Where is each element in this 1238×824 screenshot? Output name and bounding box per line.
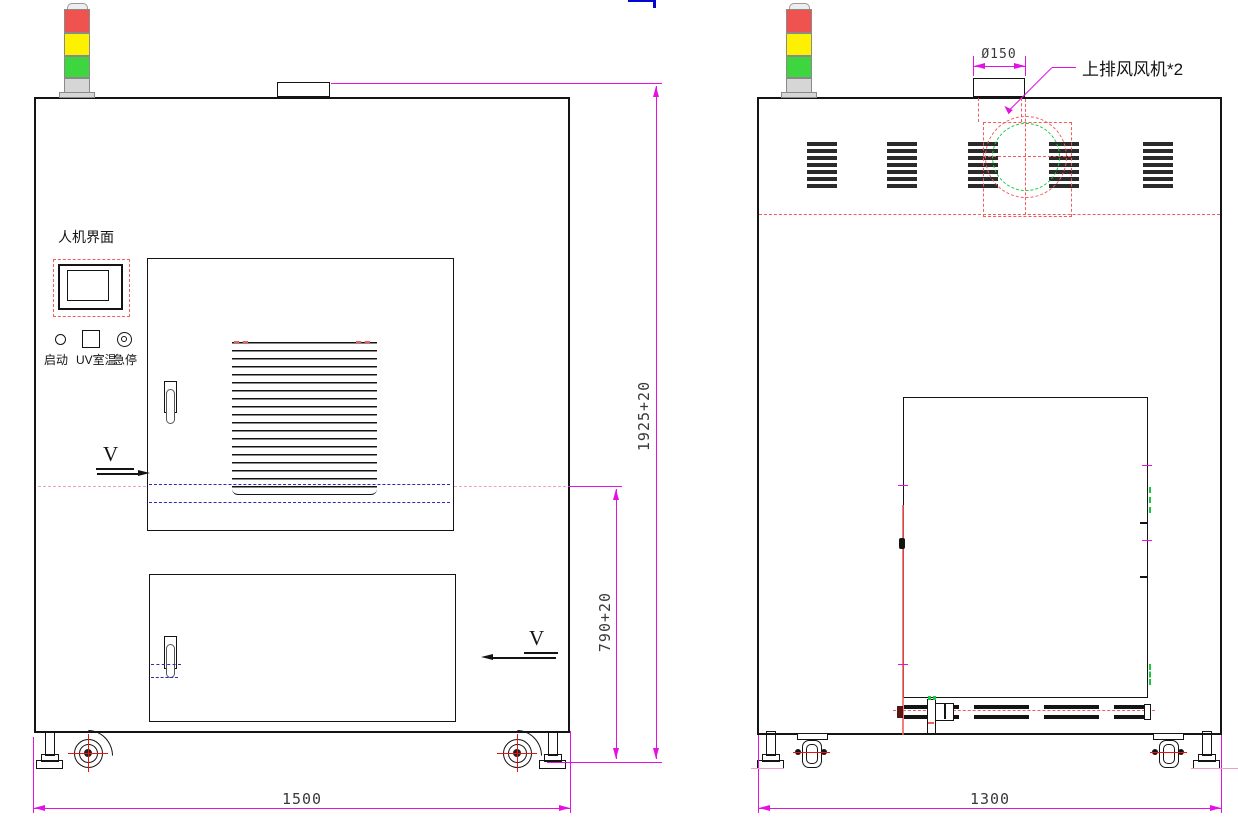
fan-centerline-v [1025, 99, 1026, 215]
bracket-mark-green [933, 696, 936, 700]
caster-centerline-h [1150, 752, 1187, 753]
foot-stem [1202, 731, 1212, 756]
leader-line-horizontal [1052, 67, 1076, 68]
shaft-end-right [1144, 704, 1151, 720]
uv-temp-button-label: UV室温 [76, 351, 117, 368]
foot-stem [548, 731, 558, 756]
exhaust-duct [973, 78, 1025, 97]
hmi-label: 人机界面 [58, 227, 114, 247]
section-arrow-left [481, 654, 493, 660]
edge-tick [1142, 540, 1152, 541]
top-panel-hidden-line [759, 214, 1220, 215]
hmi-screen-bezel [53, 259, 130, 317]
section-trace-left [38, 486, 146, 487]
dim-arrow [1014, 63, 1025, 69]
section-arrow-shaft [97, 473, 139, 475]
dimension-line-1500 [33, 808, 571, 809]
dimension-line-1300 [758, 808, 1222, 809]
section-marker-upper: V [103, 442, 118, 467]
plot-artifact [653, 0, 656, 8]
caster-mount [1153, 733, 1184, 740]
edge-tick [1142, 465, 1152, 466]
side-vent-louver [887, 142, 917, 191]
section-marker-underline [96, 468, 134, 470]
louver-corner-mark [234, 341, 248, 343]
dim-arrow [34, 805, 45, 811]
extension-line [568, 486, 622, 487]
uv-temp-button [82, 330, 100, 348]
door-latch-block [899, 538, 905, 549]
estop-button-label: 急停 [113, 351, 137, 368]
edge-tick [898, 664, 908, 665]
plot-artifact [628, 0, 656, 2]
duct-projection-dash [1021, 98, 1022, 122]
ground-line [1191, 768, 1238, 769]
caster-centerline-h [793, 752, 830, 753]
fan-duct-dim-text: Ø150 [969, 47, 1029, 62]
estop-button-inner [121, 336, 127, 342]
hmi-screen-display [67, 270, 109, 301]
fan-circle-green [992, 123, 1060, 191]
extension-line [33, 737, 34, 813]
edge-tick [898, 485, 908, 486]
lower-height-dim-text: 790+20 [596, 585, 614, 659]
extension-line [570, 731, 571, 813]
tower-yellow-lamp [64, 33, 90, 56]
caster-centerline-v [517, 734, 518, 772]
dim-arrow [613, 748, 619, 759]
fan-centerline-h [983, 156, 1071, 157]
hinge-mark-green [1149, 487, 1151, 513]
extension-line [758, 735, 759, 813]
front-width-dim-text: 1500 [270, 790, 334, 808]
side-door-opening [903, 397, 1148, 698]
duct-projection-dash [978, 98, 979, 122]
louver-corner-mark [356, 341, 370, 343]
dimension-line-1925 [656, 86, 657, 759]
estop-button [117, 332, 132, 347]
dim-arrow [559, 805, 570, 811]
front-centerline-lower [149, 502, 450, 503]
section-marker-underline [524, 652, 558, 654]
section-arrow-shaft [492, 657, 556, 659]
caster-mount [797, 733, 828, 740]
dim-arrow [1210, 805, 1221, 811]
dim-arrow [759, 805, 770, 811]
front-vent-louver [232, 342, 377, 495]
dimension-line-790 [616, 489, 617, 759]
dim-arrow [974, 63, 985, 69]
tower-yellow-lamp [786, 33, 812, 56]
start-button-label: 启动 [44, 351, 68, 368]
foot-stem [766, 731, 776, 756]
section-arrow-right [138, 470, 150, 476]
gearbox-divider [944, 703, 946, 719]
section-trace-right [454, 486, 566, 487]
engineering-drawing-canvas: 人机界面 启动 UV室温 急停 V V [0, 0, 1238, 824]
hinge-mark-green [1149, 664, 1151, 685]
shaft-end-left [897, 706, 903, 718]
ground-line [751, 768, 784, 769]
foot-base [36, 760, 63, 769]
start-button [55, 334, 66, 345]
lower-door-dash [151, 677, 178, 678]
upper-door-handle-grip [166, 389, 175, 424]
tower-flange [59, 92, 95, 98]
lower-door [149, 574, 456, 722]
side-vent-louver [807, 142, 837, 191]
foot-stem [45, 731, 55, 756]
tower-red-lamp [786, 9, 812, 33]
lower-door-handle-grip [166, 644, 175, 678]
side-width-dim-text: 1300 [958, 790, 1022, 808]
extension-line [331, 83, 662, 84]
tower-green-lamp [786, 56, 812, 78]
section-marker-lower: V [529, 626, 544, 651]
side-vent-louver [1143, 142, 1173, 191]
tower-flange [781, 92, 817, 98]
caster-wheel-side-inner [806, 744, 818, 764]
bracket-mark-green [928, 696, 931, 700]
bracket-mark-red [928, 722, 934, 724]
caster-centerline-v [88, 734, 89, 772]
front-roof-duct [277, 82, 330, 97]
dim-arrow [653, 86, 659, 97]
caster-wheel-side-inner [1163, 744, 1175, 764]
extension-line [547, 762, 662, 763]
dim-arrow [613, 489, 619, 500]
frame-tick [1140, 522, 1147, 524]
tower-red-lamp [64, 9, 90, 33]
lower-door-dash [151, 664, 181, 665]
frame-tick [1140, 576, 1147, 578]
front-centerline-upper [149, 484, 450, 485]
tower-green-lamp [64, 56, 90, 78]
total-height-dim-text: 1925+20 [635, 373, 653, 459]
fan-label: 上排风风机*2 [1082, 55, 1183, 80]
dim-arrow [653, 748, 659, 759]
extension-line [1221, 735, 1222, 813]
